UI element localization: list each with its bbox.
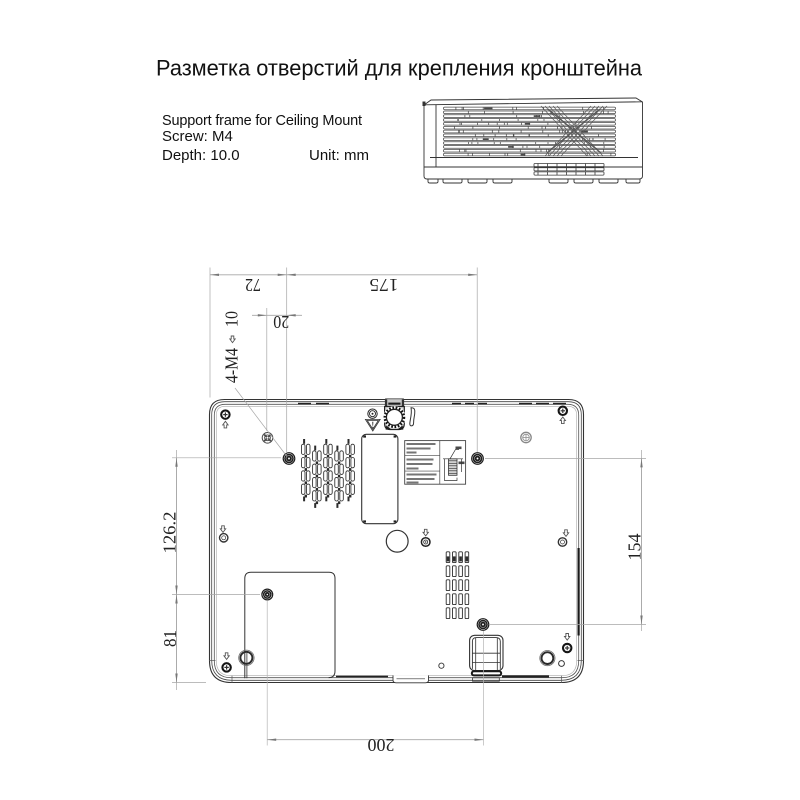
svg-text:Разметка отверстий для креплен: Разметка отверстий для крепления кронште… <box>156 56 643 81</box>
svg-text:81: 81 <box>160 630 180 647</box>
svg-text:Unit: mm: Unit: mm <box>309 147 369 164</box>
svg-text:Screw: M4: Screw: M4 <box>162 128 233 145</box>
svg-text:10: 10 <box>222 311 242 327</box>
svg-text:200: 200 <box>368 735 395 755</box>
svg-text:4-M4: 4-M4 <box>222 348 242 383</box>
svg-text:126.2: 126.2 <box>160 512 180 554</box>
svg-text:Depth: 10.0: Depth: 10.0 <box>162 147 240 164</box>
svg-text:20: 20 <box>273 312 289 332</box>
svg-text:175: 175 <box>370 275 399 295</box>
svg-text:72: 72 <box>245 275 261 295</box>
svg-text:154: 154 <box>625 534 645 561</box>
svg-text:Support frame for Ceiling Moun: Support frame for Ceiling Mount <box>162 113 362 129</box>
